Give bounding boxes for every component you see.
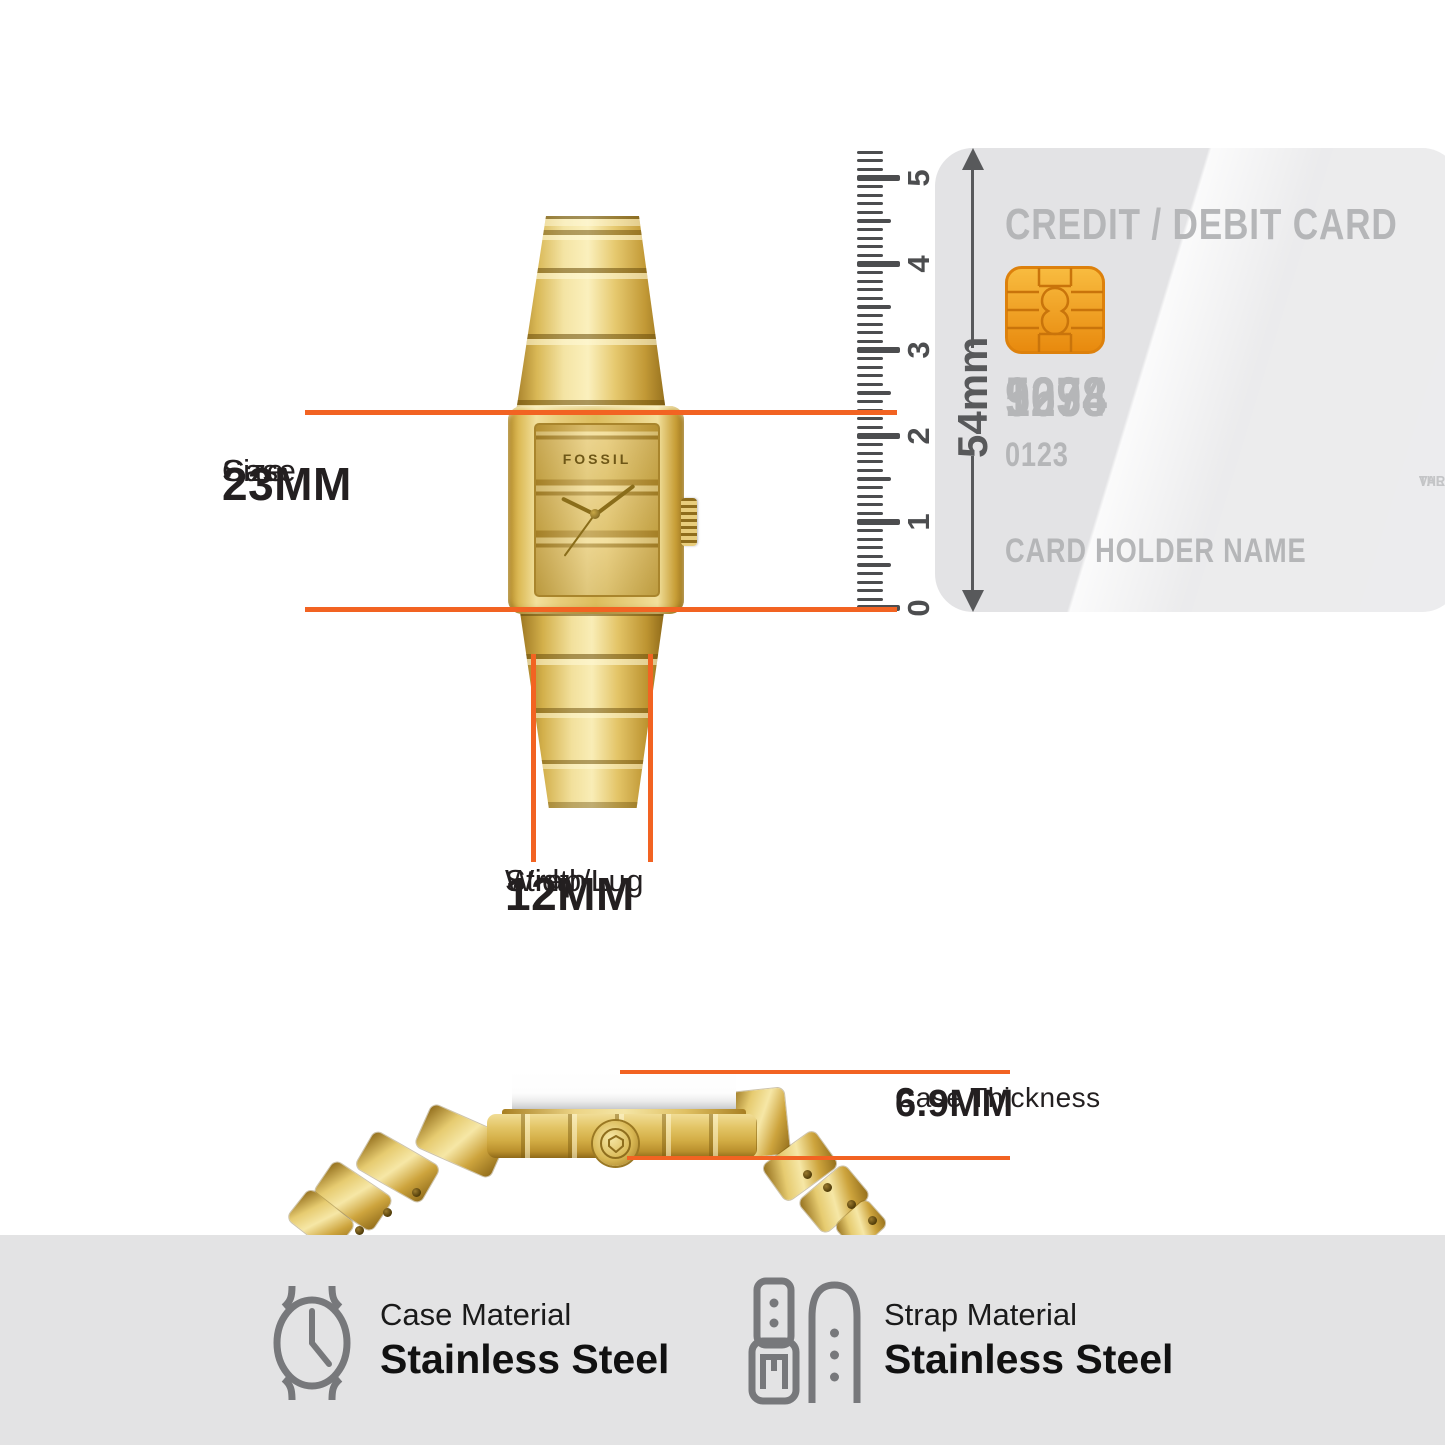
ruler-tick xyxy=(857,347,900,353)
strap-width-line-right xyxy=(648,654,653,862)
ruler-tick xyxy=(857,331,883,334)
case-size-value: 23MM xyxy=(222,458,352,510)
ruler-tick xyxy=(857,202,883,205)
ruler-tick xyxy=(857,357,883,360)
ruler-tick xyxy=(857,280,883,283)
ruler-tick xyxy=(857,340,883,343)
ruler-tick xyxy=(857,254,883,257)
ruler-tick xyxy=(857,452,883,455)
ruler-tick xyxy=(857,194,883,197)
ruler-tick xyxy=(857,374,883,377)
ruler-tick xyxy=(857,417,883,420)
ruler-number: 5 xyxy=(902,161,936,195)
ruler-tick xyxy=(857,555,883,558)
ruler-tick xyxy=(857,460,883,463)
ruler-tick xyxy=(857,159,883,162)
ruler-tick xyxy=(857,175,900,181)
ruler-tick xyxy=(857,305,891,309)
case-size-line-bottom xyxy=(305,607,897,612)
ruler-tick xyxy=(857,323,883,326)
ruler-tick xyxy=(857,529,883,532)
ruler-tick xyxy=(857,477,891,481)
ruler-tick xyxy=(857,433,900,439)
strap-width-value: 12MM xyxy=(505,868,635,920)
case-thickness-value: 6.9MM xyxy=(895,1084,1014,1124)
ruler-tick xyxy=(857,391,891,395)
ruler-tick xyxy=(857,538,883,541)
ruler-number: 1 xyxy=(902,505,936,539)
ruler-tick xyxy=(857,400,883,403)
case-size-line-top xyxy=(305,410,897,415)
ruler-tick xyxy=(857,237,883,240)
ruler-tick xyxy=(857,366,883,369)
ruler-tick xyxy=(857,443,883,446)
ruler-number: 3 xyxy=(902,333,936,367)
ruler-tick xyxy=(857,519,900,525)
ruler-tick xyxy=(857,503,883,506)
ruler-tick xyxy=(857,288,883,291)
ruler: 012345 xyxy=(0,0,1445,1445)
ruler-tick xyxy=(857,598,883,601)
ruler-tick xyxy=(857,546,883,549)
ruler-tick xyxy=(857,589,883,592)
ruler-tick xyxy=(857,469,883,472)
ruler-tick xyxy=(857,261,900,267)
ruler-tick xyxy=(857,211,883,214)
ruler-tick xyxy=(857,314,883,317)
ruler-number: 4 xyxy=(902,247,936,281)
strap-width-line-left xyxy=(531,654,536,862)
ruler-tick xyxy=(857,486,883,489)
ruler-tick xyxy=(857,185,883,188)
ruler-tick xyxy=(857,151,883,154)
ruler-tick xyxy=(857,271,883,274)
watch-dimension-infographic: FOSSIL 012345 Case Size 23MM Strap/Lug W… xyxy=(0,0,1445,1445)
case-thickness-line-top xyxy=(620,1070,1010,1074)
ruler-tick xyxy=(857,219,891,223)
ruler-tick xyxy=(857,383,883,386)
ruler-tick xyxy=(857,563,891,567)
ruler-number: 2 xyxy=(902,419,936,453)
ruler-tick xyxy=(857,245,883,248)
ruler-tick xyxy=(857,228,883,231)
ruler-tick xyxy=(857,495,883,498)
ruler-tick xyxy=(857,426,883,429)
ruler-tick xyxy=(857,168,883,171)
ruler-tick xyxy=(857,572,883,575)
ruler-tick xyxy=(857,581,883,584)
ruler-tick xyxy=(857,512,883,515)
case-thickness-line-bottom xyxy=(627,1156,1010,1160)
ruler-tick xyxy=(857,297,883,300)
ruler-number: 0 xyxy=(902,591,936,625)
